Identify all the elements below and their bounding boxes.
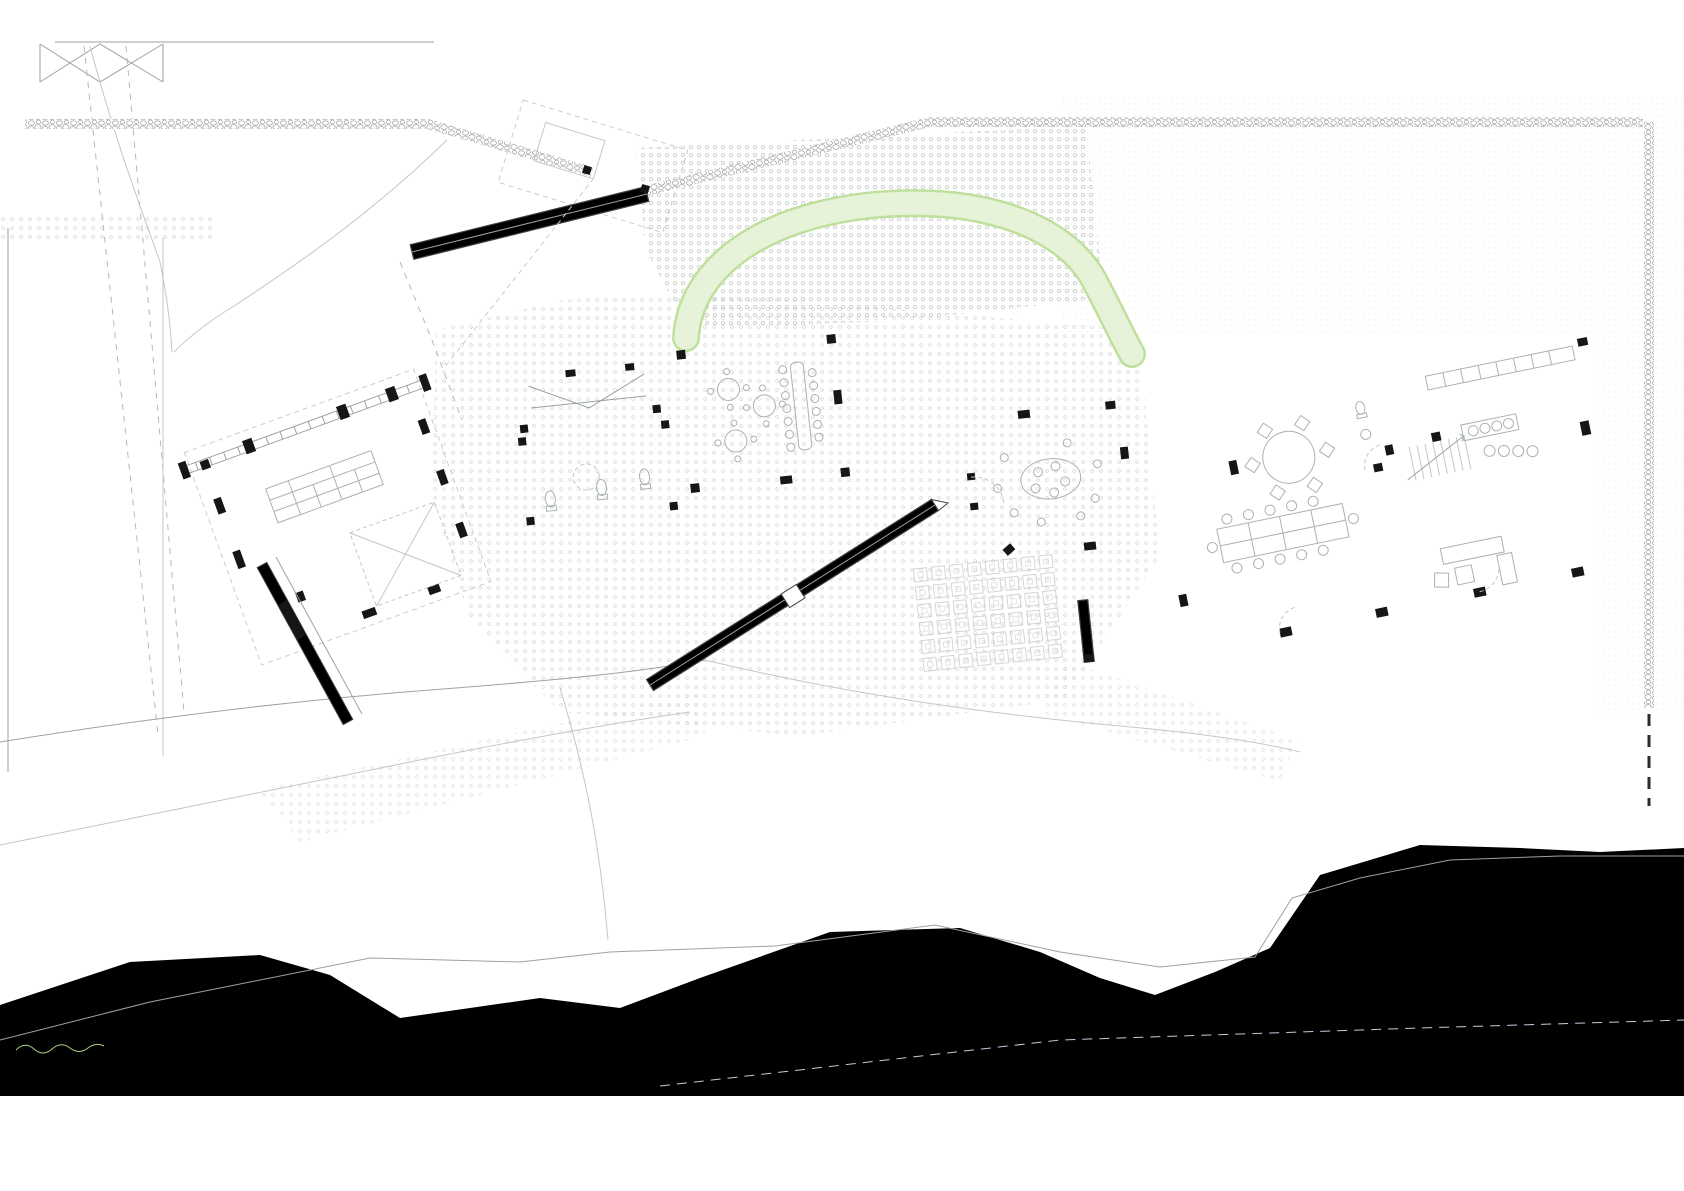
- path-paving-se: [1040, 660, 1298, 782]
- east-exterior-walls: [1144, 337, 1634, 656]
- coast: [0, 845, 1684, 1096]
- boardwalk-southwest: [257, 557, 362, 725]
- paper-texture: [1060, 96, 1684, 336]
- plaza-paving: [432, 292, 1160, 736]
- round-table-room: [1237, 410, 1342, 505]
- bathroom-fixtures: [1354, 401, 1372, 441]
- kitchen: [1425, 346, 1592, 475]
- reception-desk: [266, 451, 384, 523]
- power-pylon: [40, 44, 163, 82]
- parking-area: [8, 228, 163, 772]
- drive-curve-2: [174, 140, 447, 352]
- building-east: [1144, 337, 1634, 656]
- planting-grid: [910, 551, 1067, 676]
- path-paving-sw: [258, 692, 706, 842]
- pergola: [178, 373, 432, 479]
- water-body: [0, 845, 1684, 1096]
- site-plan-canvas: [0, 0, 1684, 1191]
- property-dashed-2: [126, 46, 184, 712]
- curved-retaining-wall: [192, 596, 214, 652]
- lounge-sofa: [1427, 535, 1517, 599]
- drive-curve-3: [160, 262, 172, 352]
- site-plan-svg: [0, 0, 1684, 1191]
- conference-table: [1201, 488, 1364, 578]
- handrail: [276, 557, 362, 714]
- paper-texture-right: [1596, 336, 1684, 716]
- door-swings-south: [1275, 563, 1503, 632]
